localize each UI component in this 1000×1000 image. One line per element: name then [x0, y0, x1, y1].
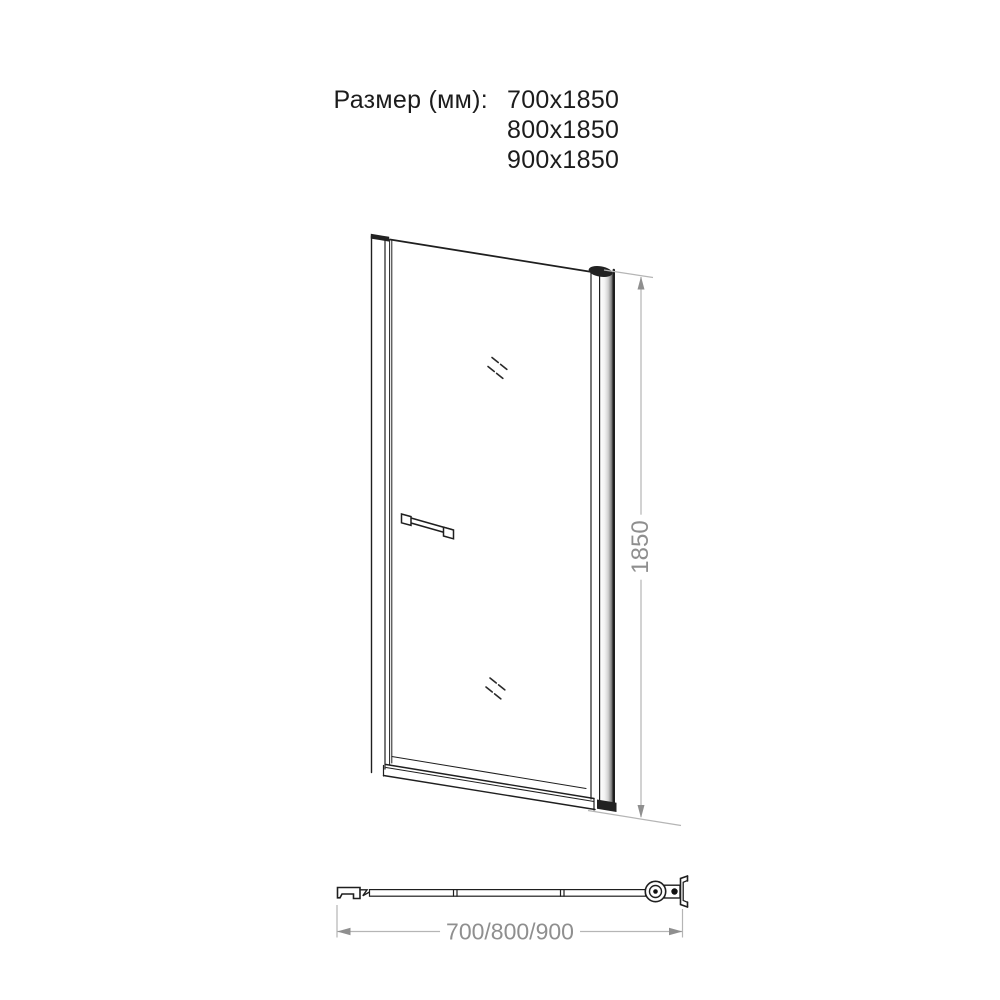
- arrow-up-icon: [638, 277, 645, 290]
- left-door-profile: [371, 234, 392, 773]
- glass-panel: [390, 240, 592, 800]
- bottom-rail: [384, 765, 596, 811]
- door-handle: [402, 514, 454, 539]
- wall-profile: [588, 264, 617, 812]
- width-dimension-label: 700/800/900: [440, 919, 580, 946]
- top-view-wall-profile: [681, 876, 688, 907]
- door-top-view: [338, 876, 688, 907]
- height-dimension-label: 1850: [627, 514, 655, 579]
- shower-door-drawing: [0, 0, 1000, 1000]
- top-view-hinge: [645, 881, 680, 901]
- top-view-handle: [338, 888, 370, 899]
- door-front-view: [371, 234, 617, 812]
- glass-reflection-marks: [486, 358, 507, 700]
- arrow-left-icon: [337, 928, 351, 935]
- arrow-down-icon: [638, 805, 645, 818]
- product-diagram-page: Размер (мм): 700x1850 800x1850 900x1850: [0, 0, 1000, 1000]
- top-view-glass-bar: [370, 890, 646, 897]
- arrow-right-icon: [669, 928, 683, 935]
